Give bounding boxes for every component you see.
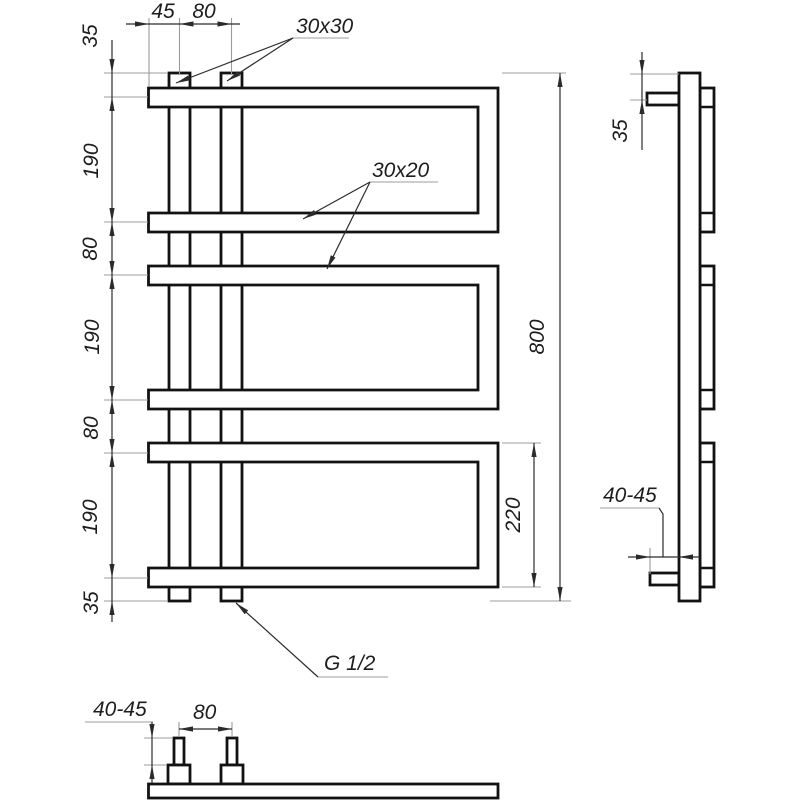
side-bottom-connection-stub [650,573,679,585]
bottom-pipe-right [227,738,237,765]
side-view: 35 40-45 [600,52,714,601]
front-loop-2 [149,266,499,409]
dim-label-35-bottom: 35 [80,591,103,615]
dim-label-35-top: 35 [79,24,102,48]
technical-drawing: 45 80 30x30 35 190 80 190 80 190 35 30x2… [0,0,800,800]
dim-label-80-2: 80 [80,416,103,440]
bottom-view: 40-45 80 [85,698,498,798]
dim-label-190-2: 190 [81,319,104,354]
side-dim-label-40-45: 40-45 [603,484,657,507]
side-riser-profile [679,73,700,601]
dim-label-190-3: 190 [79,499,102,534]
label-riser-profile-30x30: 30x30 [296,15,354,38]
label-rung-profile-30x20: 30x20 [372,159,430,182]
bottom-riser-right [221,765,243,784]
side-view-labels: 35 40-45 [603,119,657,507]
dim-label-800: 800 [526,319,549,354]
side-dim-label-35: 35 [609,119,632,143]
front-view: 45 80 30x30 35 190 80 190 80 190 35 30x2… [79,0,571,677]
dim-label-45: 45 [151,0,175,23]
side-top-connection-stub [647,93,679,105]
bottom-dim-label-80: 80 [193,701,217,724]
front-riser-right [221,73,242,601]
front-loop-1 [149,88,499,232]
bottom-dim-label-40-45: 40-45 [93,698,147,721]
side-loop-columns [700,88,714,587]
bottom-pipe-left [174,738,184,765]
dim-label-80-1: 80 [79,237,102,261]
front-loop-3 [149,443,499,587]
dim-label-80-top: 80 [192,0,216,23]
bottom-view-labels: 40-45 80 [93,698,217,724]
dim-label-190-1: 190 [80,143,103,178]
dim-label-220: 220 [502,497,525,533]
bottom-riser-left [168,765,190,784]
drawing-canvas: 45 80 30x30 35 190 80 190 80 190 35 30x2… [0,0,800,800]
front-riser-left [169,73,190,601]
bottom-rung-plate [149,784,499,798]
label-connection-g12: G 1/2 [324,652,376,675]
